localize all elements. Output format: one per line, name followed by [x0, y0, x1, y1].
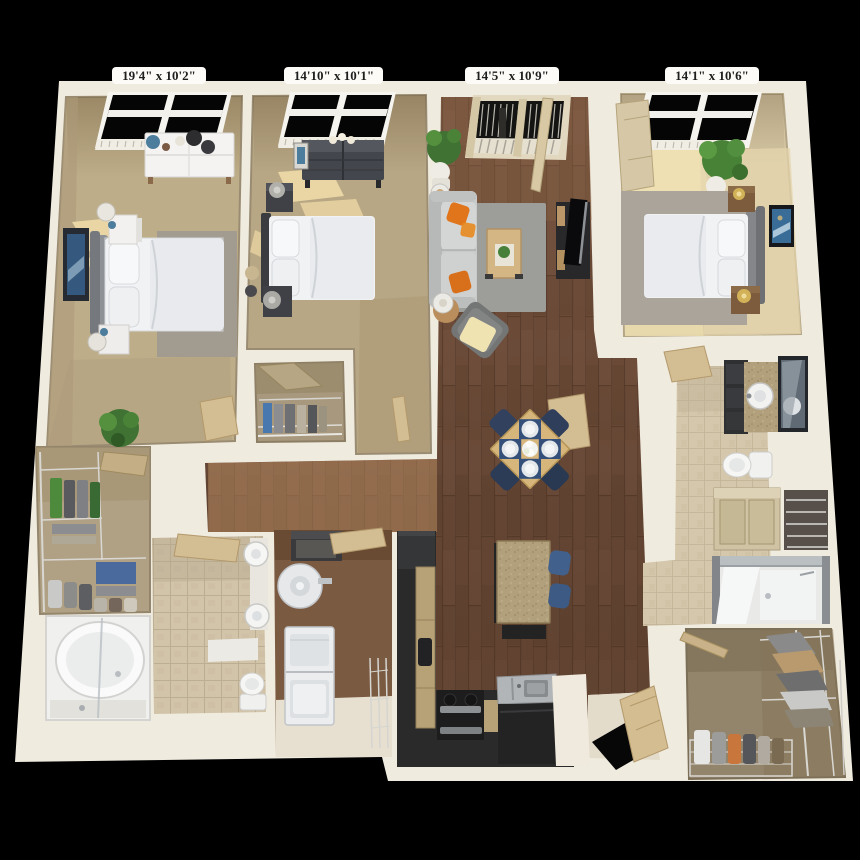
svg-text:14'10" x 10'1": 14'10" x 10'1"	[294, 68, 374, 83]
svg-text:19'4" x 10'2": 19'4" x 10'2"	[122, 68, 196, 83]
svg-text:14'1" x 10'6": 14'1" x 10'6"	[675, 68, 749, 83]
svg-text:14'5" x 10'9": 14'5" x 10'9"	[475, 68, 549, 83]
